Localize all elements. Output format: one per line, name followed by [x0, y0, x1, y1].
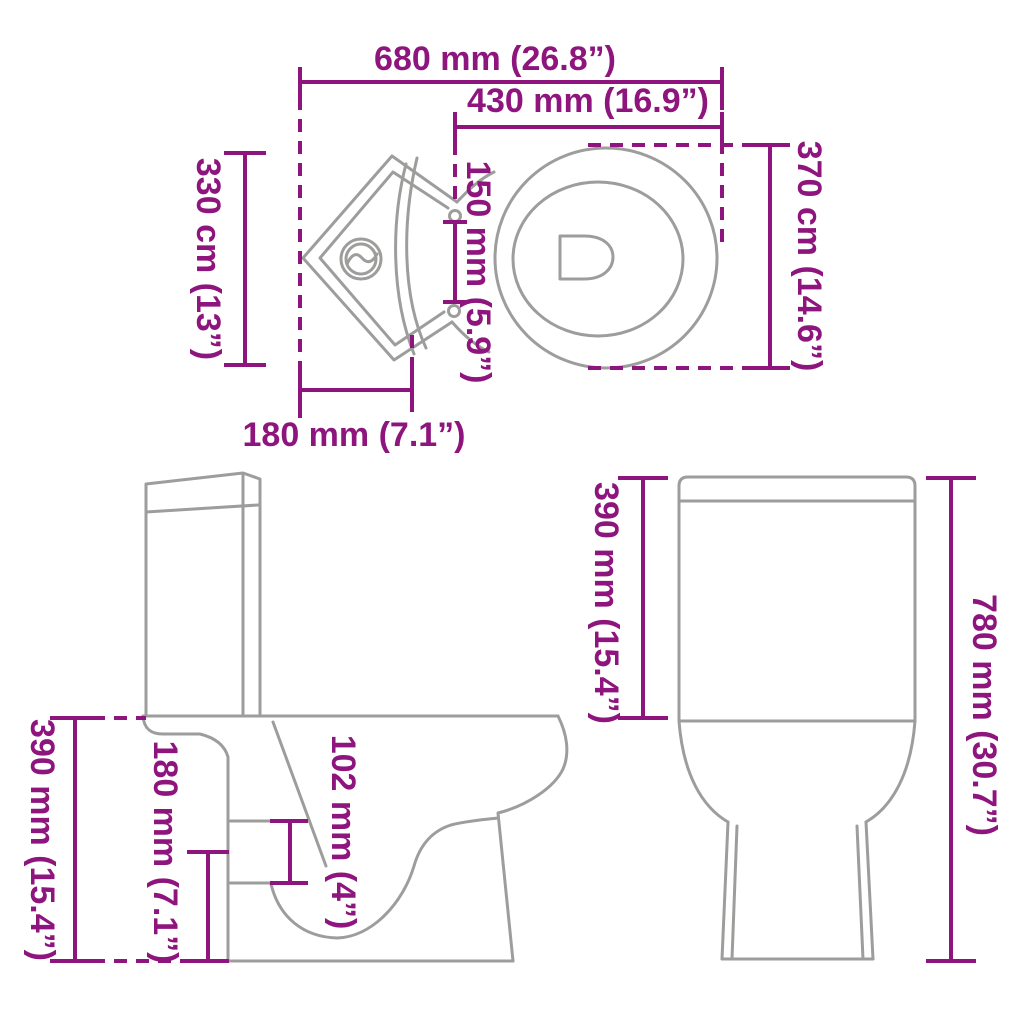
hinge-bolt-bottom [449, 306, 460, 317]
front-pedestal-right-inner [857, 826, 863, 959]
seat-inner-ring [513, 182, 683, 336]
label-bowl-height: 390 mm (15.4”) [23, 719, 61, 961]
label-total-height: 780 mm (30.7”) [965, 594, 1003, 836]
label-seat-depth: 370 cm (14.6”) [790, 141, 828, 372]
label-hinge-spacing: 150 mm (5.9”) [459, 161, 497, 384]
label-outlet-size: 102 mm (4”) [324, 735, 362, 930]
side-bowl-back-slope [273, 722, 326, 866]
front-bowl-curve-right [866, 721, 915, 822]
front-bowl-curve-left [679, 721, 728, 822]
tank-inner-outline [320, 172, 448, 345]
top-view-tank [303, 156, 457, 360]
label-seat-width: 430 mm (16.9”) [467, 82, 709, 120]
front-pedestal-right-outer [866, 822, 873, 959]
label-back-left-side: 330 cm (13”) [189, 158, 227, 360]
toilet-dimension-drawing: 680 mm (26.8”) 430 mm (16.9”) 330 cm (13… [0, 0, 1024, 1024]
label-overall-width: 680 mm (26.8”) [374, 40, 616, 78]
label-tank-height: 390 mm (15.4”) [587, 482, 625, 724]
label-corner-to-front: 180 mm (7.1”) [243, 416, 466, 454]
side-tank-lid-line [146, 505, 258, 512]
hinge-bolt-top [450, 211, 461, 222]
side-bowl-underside-curve [271, 818, 498, 938]
front-view-outline [679, 477, 915, 959]
flush-button-wave [347, 254, 377, 264]
seat-center-hole [560, 236, 613, 279]
front-pedestal-left-inner [732, 826, 737, 959]
front-tank [679, 477, 915, 721]
label-outlet-height: 180 mm (7.1”) [146, 741, 184, 964]
side-front-rim-profile [498, 716, 567, 961]
dimension-lines [50, 67, 976, 961]
front-pedestal-left-outer [722, 822, 728, 959]
dimension-diagram: 680 mm (26.8”) 430 mm (16.9”) 330 cm (13… [0, 0, 1024, 1024]
